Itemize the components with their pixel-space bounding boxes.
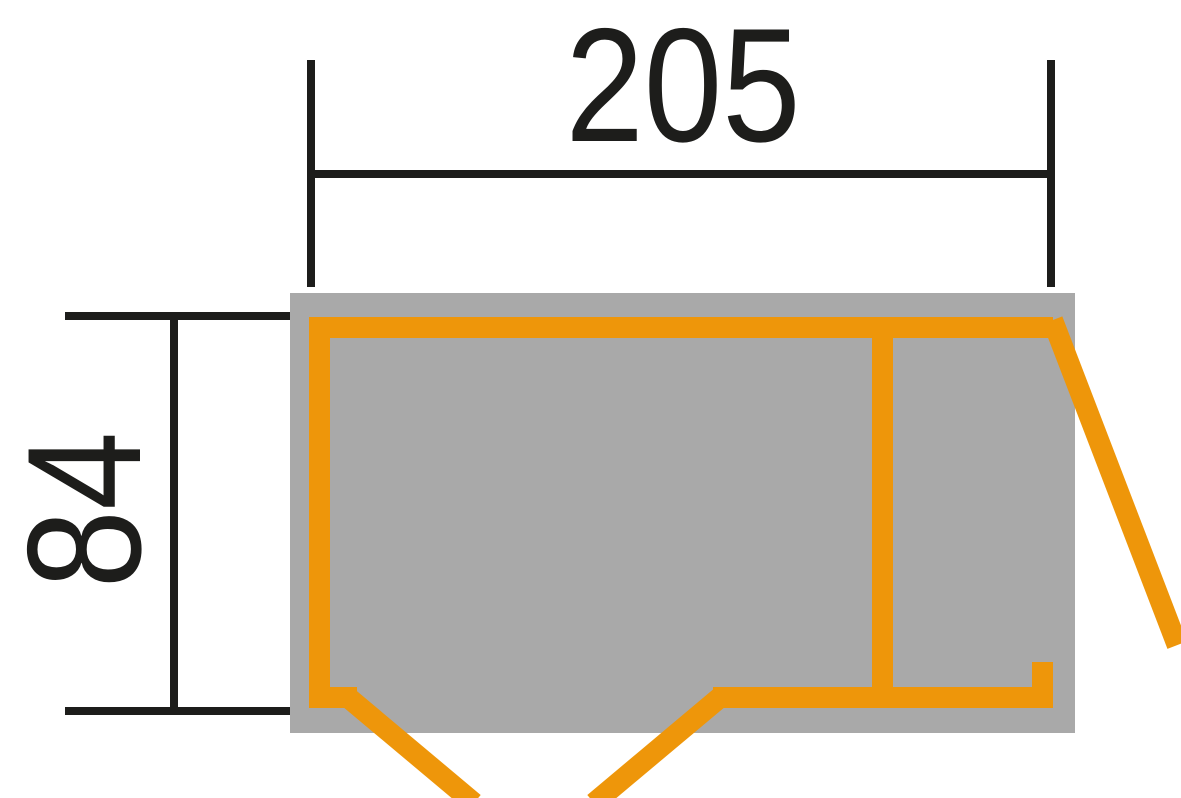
width-dimension-label: 205 (565, 0, 800, 176)
partition-wall (872, 338, 893, 687)
floor-slab (290, 293, 1075, 733)
wall-bottom (713, 687, 1053, 708)
depth-dimension-label: 84 (0, 432, 175, 589)
floor-plan-page: 205 84 (0, 0, 1181, 798)
wall-top (309, 317, 1053, 338)
wall-bottom-right-stub (1032, 662, 1053, 708)
floor-plan-drawing: 205 84 (0, 0, 1181, 798)
wall-left (309, 317, 330, 708)
